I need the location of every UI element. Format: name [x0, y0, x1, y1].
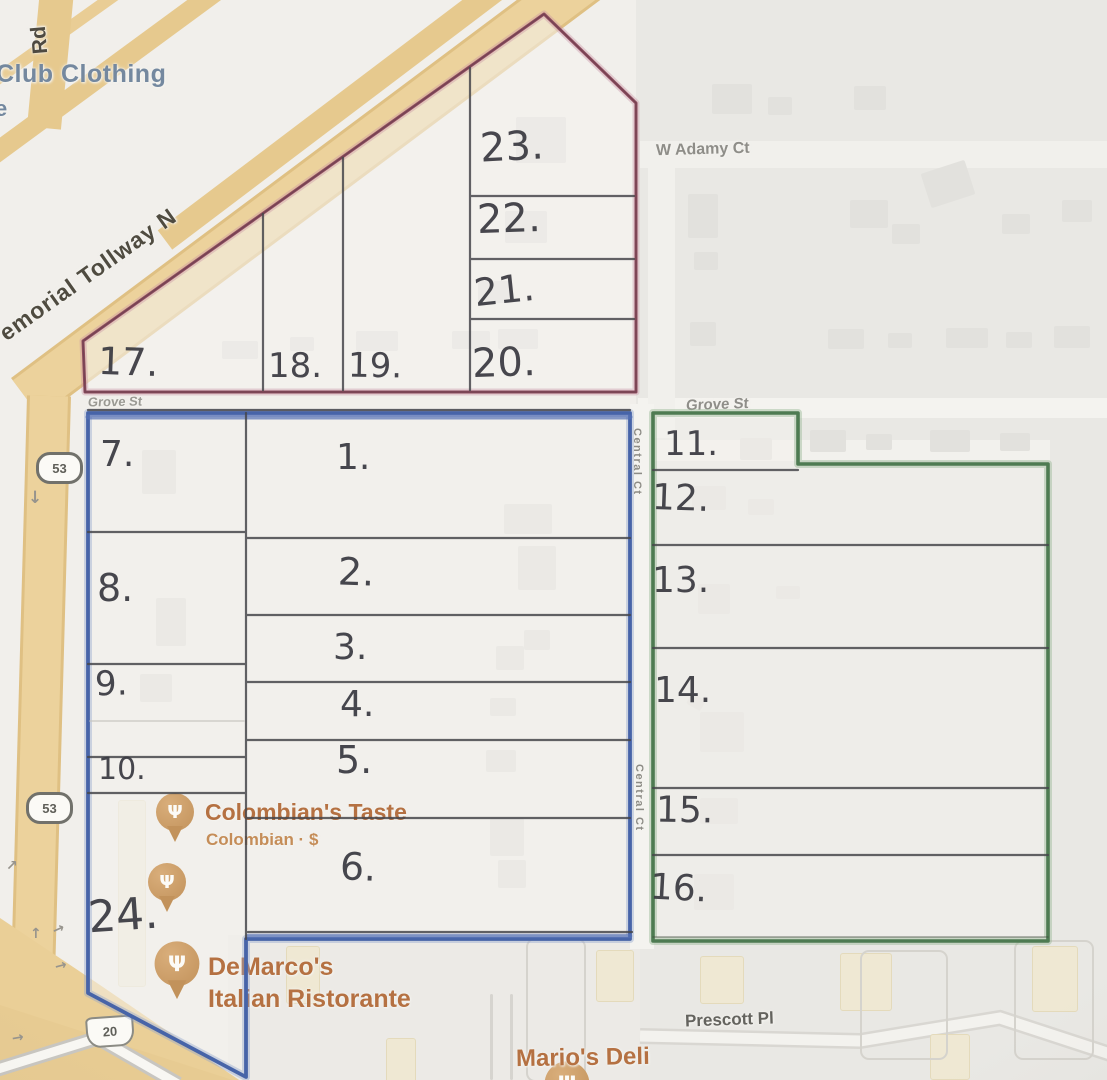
road-label-w-adamy-ct: W Adamy Ct: [656, 140, 750, 160]
route-shield-53: 53: [26, 792, 73, 824]
restaurant-pin-icon: Ψ: [155, 941, 200, 1002]
poi-label-demarcos-line2: Italian Ristorante: [208, 985, 411, 1014]
road-arrow-icon: ↑: [30, 926, 42, 942]
building-footprint: [596, 950, 634, 1002]
lot-number-12: 12.: [651, 477, 710, 520]
building-footprint: [386, 1038, 416, 1080]
lot-number-10: 10.: [98, 752, 146, 787]
lot-number-23: 23.: [479, 122, 545, 171]
residential-area-background: [636, 0, 1107, 1080]
lot-number-4: 4.: [340, 684, 374, 725]
road-arrow-icon: ↓: [28, 488, 42, 508]
lot-number-19: 19.: [348, 346, 403, 387]
building-footprint: [142, 450, 176, 494]
lot-number-22: 22.: [476, 195, 541, 243]
lot-number-14: 14.: [654, 670, 711, 711]
building-footprint: [700, 712, 744, 752]
building-footprint: [850, 200, 888, 228]
route-shield-20: 20: [85, 1014, 135, 1048]
road-edge-line: [490, 994, 493, 1080]
road-arrow-icon: ↗: [6, 858, 18, 874]
lot-number-11: 11.: [664, 424, 718, 464]
lot-number-2: 2.: [337, 549, 375, 594]
poi-label-colombians-name: Colombian's Taste: [205, 799, 407, 826]
building-footprint: [1000, 433, 1030, 451]
building-footprint: [486, 750, 516, 772]
lot-number-18: 18.: [268, 346, 322, 386]
lot-number-7: 7.: [100, 434, 134, 475]
road-label-memorial-tollway: emorial Tollway N: [0, 203, 182, 347]
parking-lot-outline: [860, 950, 948, 1060]
building-footprint: [504, 504, 552, 534]
building-footprint: [1062, 200, 1092, 222]
road-label-grove-st-east: Grove St: [685, 395, 749, 414]
building-footprint: [690, 322, 716, 346]
building-footprint: [490, 698, 516, 716]
building-footprint: [946, 328, 988, 348]
building-footprint: [748, 499, 774, 515]
building-footprint: [712, 84, 752, 114]
building-footprint: [496, 646, 524, 670]
road-edge-line: [510, 994, 513, 1080]
road-label-central-ct-upper: Central Ct: [631, 428, 643, 530]
building-footprint: [1054, 326, 1090, 348]
road-arrow-icon: ↗: [50, 920, 66, 939]
building-footprint: [776, 586, 800, 599]
map-photo: Rd emorial Tollway N W Adamy Ct Grove St…: [0, 0, 1107, 1080]
building-footprint: [140, 674, 172, 702]
building-footprint: [888, 333, 912, 348]
building-footprint: [740, 438, 772, 460]
lot-number-6: 6.: [339, 844, 378, 890]
lot-number-3: 3.: [333, 627, 367, 668]
building-footprint: [892, 224, 920, 244]
road-label-grove-st-west: Grove St: [87, 394, 142, 410]
building-footprint: [866, 434, 892, 450]
parking-lot-outline: [1014, 940, 1094, 1060]
road-label-prescott-pl: Prescott Pl: [685, 1008, 774, 1031]
building-footprint: [854, 86, 886, 110]
lot-number-8: 8.: [97, 566, 133, 610]
poi-label-demarcos-line1: DeMarco's: [208, 953, 333, 982]
building-footprint: [700, 956, 744, 1004]
road-label-central-ct-lower: Central Ct: [633, 764, 645, 870]
lot-number-20: 20.: [471, 339, 536, 387]
building-footprint: [688, 194, 718, 238]
lot-number-15: 15.: [656, 790, 714, 832]
lot-number-9: 9.: [94, 663, 128, 704]
restaurant-pin-icon: Ψ: [156, 793, 194, 845]
road-arrow-icon: →: [53, 957, 68, 975]
lot-number-17: 17.: [97, 339, 159, 385]
poi-label-marios-deli: Mario's Deli: [516, 1043, 650, 1073]
building-footprint: [490, 818, 524, 856]
road-arrow-icon: →: [11, 1029, 25, 1047]
lot-number-5: 5.: [336, 738, 372, 782]
poi-label-fragment: e: [0, 96, 7, 122]
building-footprint: [810, 430, 846, 452]
lot-number-21: 21.: [472, 265, 537, 315]
building-footprint: [498, 860, 526, 888]
poi-label-colombians-detail: Colombian · $: [206, 830, 318, 850]
building-footprint: [156, 598, 186, 646]
building-footprint: [222, 341, 258, 359]
building-footprint: [768, 97, 792, 115]
lot-number-1: 1.: [336, 437, 370, 478]
route-shield-53: 53: [36, 452, 83, 484]
building-footprint: [1006, 332, 1032, 348]
building-footprint: [524, 630, 550, 650]
building-footprint: [1002, 214, 1030, 234]
building-footprint: [518, 546, 556, 590]
building-footprint: [828, 329, 864, 349]
lot-number-24: 24.: [86, 888, 159, 944]
lot-number-16: 16.: [649, 867, 708, 911]
road-label-rd: Rd: [27, 25, 53, 55]
lot-number-13: 13.: [652, 560, 709, 601]
building-footprint: [694, 252, 718, 270]
building-footprint: [930, 430, 970, 452]
poi-label-club-clothing: Club Clothing: [0, 60, 166, 89]
